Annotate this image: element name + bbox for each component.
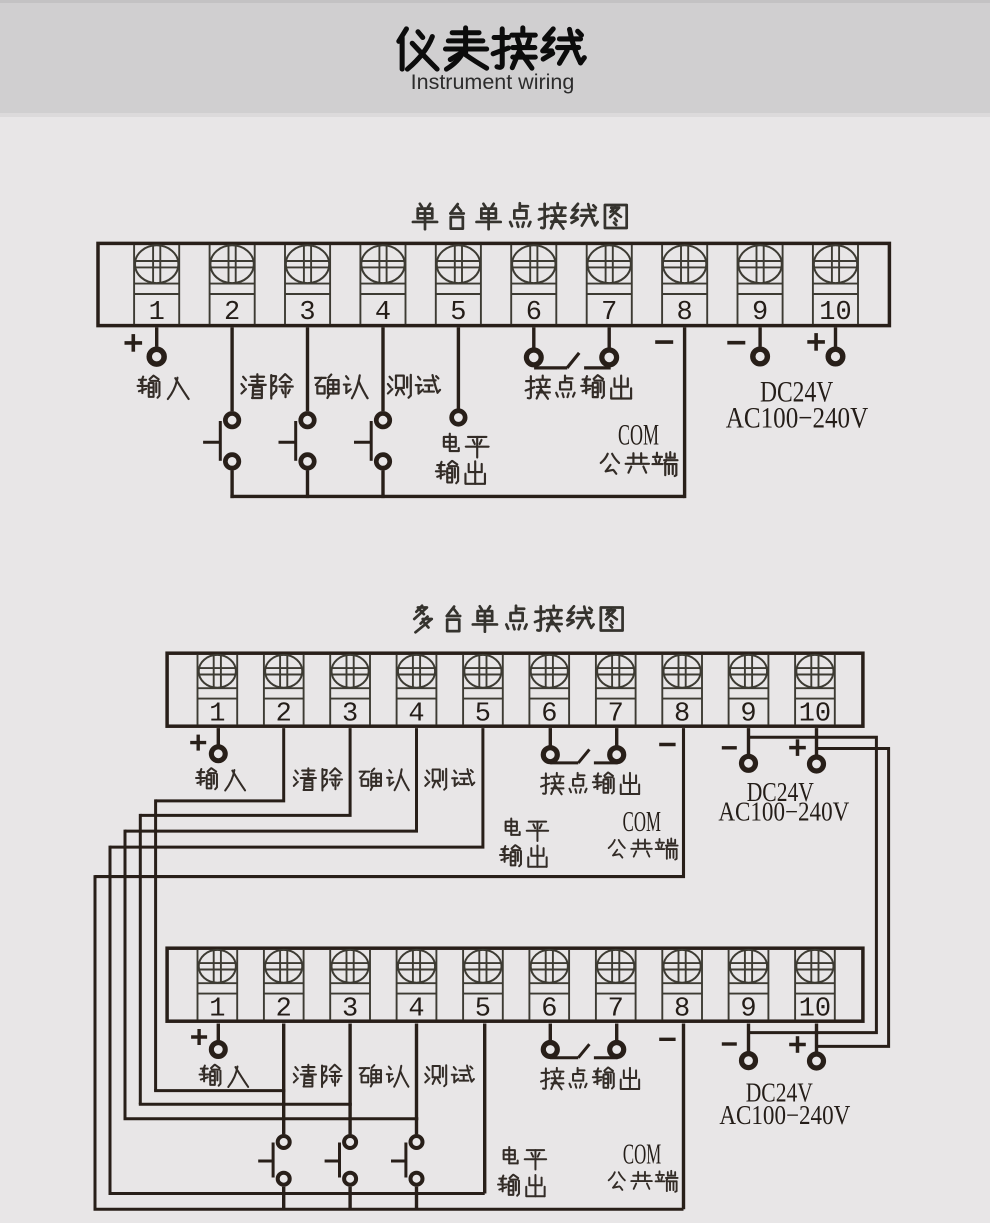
svg-text:9: 9 — [752, 298, 768, 328]
svg-text:6: 6 — [541, 994, 557, 1024]
svg-text:7: 7 — [608, 699, 624, 729]
svg-text:COM: COM — [623, 806, 661, 838]
svg-text:1: 1 — [149, 298, 165, 328]
svg-text:AC100−240V: AC100−240V — [726, 400, 868, 434]
svg-text:COM: COM — [618, 419, 659, 452]
svg-text:8: 8 — [674, 699, 690, 729]
svg-text:4: 4 — [375, 298, 391, 328]
svg-text:7: 7 — [601, 298, 617, 328]
svg-text:1: 1 — [209, 994, 225, 1024]
svg-text:8: 8 — [676, 298, 692, 328]
svg-text:2: 2 — [224, 298, 240, 328]
svg-text:2: 2 — [276, 994, 292, 1024]
svg-text:1: 1 — [209, 699, 225, 729]
svg-text:10: 10 — [819, 298, 851, 328]
svg-text:COM: COM — [623, 1138, 661, 1170]
svg-text:4: 4 — [408, 699, 424, 729]
svg-text:5: 5 — [475, 994, 491, 1024]
svg-text:AC100−240V: AC100−240V — [718, 798, 849, 827]
svg-text:5: 5 — [450, 298, 466, 328]
svg-text:3: 3 — [342, 699, 358, 729]
svg-text:Instrument wiring: Instrument wiring — [411, 70, 575, 94]
svg-text:7: 7 — [608, 994, 624, 1024]
svg-text:4: 4 — [408, 994, 424, 1024]
svg-text:9: 9 — [740, 994, 756, 1024]
svg-text:6: 6 — [526, 298, 542, 328]
svg-text:AC100−240V: AC100−240V — [719, 1101, 850, 1130]
svg-text:8: 8 — [674, 994, 690, 1024]
svg-text:10: 10 — [799, 699, 831, 729]
svg-text:3: 3 — [342, 994, 358, 1024]
svg-text:5: 5 — [475, 699, 491, 729]
svg-text:9: 9 — [740, 699, 756, 729]
svg-text:3: 3 — [299, 298, 315, 328]
svg-text:6: 6 — [541, 699, 557, 729]
svg-text:10: 10 — [799, 994, 831, 1024]
svg-text:2: 2 — [276, 699, 292, 729]
